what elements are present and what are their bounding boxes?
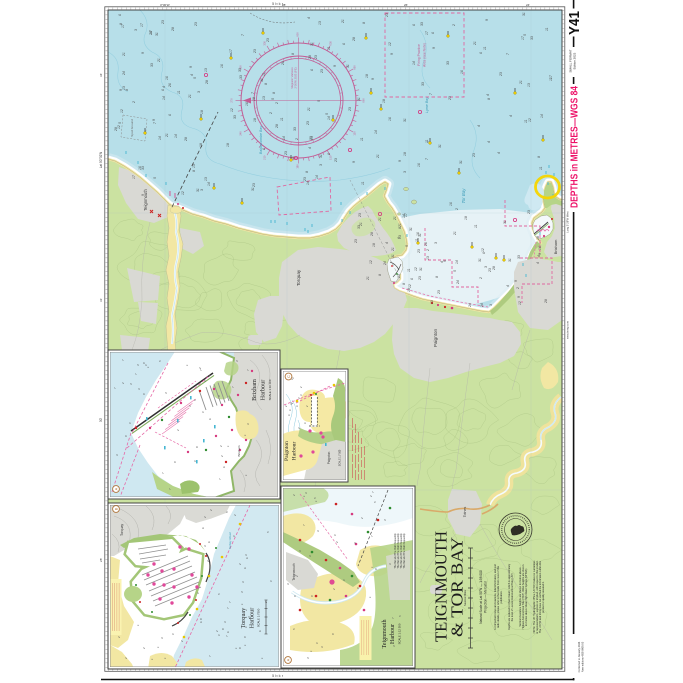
svg-text:14: 14 bbox=[540, 114, 544, 118]
svg-text:2: 2 bbox=[275, 102, 279, 105]
svg-text:14: 14 bbox=[158, 136, 162, 140]
svg-text:2°50'W 2023 (9'E): 2°50'W 2023 (9'E) bbox=[294, 67, 298, 88]
svg-text:26: 26 bbox=[424, 242, 428, 247]
svg-text:the level of Lowest Astronomic: the level of Lowest Astronomical Tide (L… bbox=[511, 572, 514, 621]
svg-text:9: 9 bbox=[371, 78, 375, 80]
svg-text:14: 14 bbox=[412, 61, 416, 65]
svg-text:26: 26 bbox=[281, 61, 285, 66]
svg-text:Spoil Ground: Spoil Ground bbox=[130, 119, 134, 137]
svg-text:18: 18 bbox=[407, 288, 411, 292]
svg-text:33: 33 bbox=[530, 36, 534, 40]
svg-text:16: 16 bbox=[417, 163, 421, 167]
svg-text:23: 23 bbox=[358, 213, 362, 218]
svg-text:17: 17 bbox=[132, 175, 136, 179]
svg-text:2: 2 bbox=[332, 588, 336, 591]
svg-text:5: 5 bbox=[118, 122, 122, 124]
svg-text:Teignmouth: Teignmouth bbox=[382, 620, 388, 649]
svg-text:Teignmouth: Teignmouth bbox=[292, 563, 296, 581]
svg-text:& TOR BAY: & TOR BAY bbox=[448, 537, 467, 637]
svg-text:28: 28 bbox=[352, 37, 356, 42]
svg-text:4: 4 bbox=[307, 17, 311, 19]
svg-text:6: 6 bbox=[410, 278, 414, 280]
svg-text:www.imray.com: www.imray.com bbox=[566, 321, 570, 339]
svg-text:13: 13 bbox=[318, 21, 322, 25]
svg-text:14: 14 bbox=[455, 260, 459, 264]
svg-text:17: 17 bbox=[404, 213, 408, 217]
svg-text:6: 6 bbox=[161, 89, 165, 91]
svg-text:23: 23 bbox=[320, 69, 324, 74]
svg-text:000: 000 bbox=[296, 32, 300, 37]
svg-text:9: 9 bbox=[189, 66, 193, 68]
svg-text:Y41: Y41 bbox=[567, 11, 583, 35]
svg-text:4: 4 bbox=[487, 141, 491, 143]
svg-text:11: 11 bbox=[177, 90, 181, 94]
svg-text:33: 33 bbox=[420, 22, 424, 26]
svg-text:28: 28 bbox=[184, 137, 188, 142]
svg-text:21: 21 bbox=[378, 217, 382, 222]
svg-text:3: 3 bbox=[403, 171, 407, 173]
svg-text:18: 18 bbox=[365, 74, 369, 78]
svg-text:16: 16 bbox=[416, 232, 420, 236]
svg-text:7: 7 bbox=[153, 122, 157, 124]
svg-text:23: 23 bbox=[397, 274, 401, 279]
svg-text:Brixham: Brixham bbox=[553, 239, 558, 254]
svg-text:16: 16 bbox=[388, 117, 392, 121]
svg-text:SCALE 1:10 000: SCALE 1:10 000 bbox=[268, 379, 272, 400]
svg-text:18: 18 bbox=[200, 110, 204, 114]
svg-text:12: 12 bbox=[481, 248, 485, 252]
svg-text:11: 11 bbox=[549, 77, 553, 81]
svg-text:18: 18 bbox=[199, 143, 203, 147]
svg-text:2: 2 bbox=[455, 208, 459, 211]
svg-text:2: 2 bbox=[132, 101, 136, 104]
svg-text:21: 21 bbox=[393, 216, 397, 221]
svg-text:2: 2 bbox=[233, 514, 237, 517]
svg-text:240: 240 bbox=[238, 131, 242, 136]
svg-text:Harbour: Harbour bbox=[260, 380, 267, 401]
svg-text:9: 9 bbox=[152, 119, 156, 121]
svg-text:3: 3 bbox=[319, 164, 323, 166]
svg-text:8: 8 bbox=[291, 53, 295, 55]
svg-text:9: 9 bbox=[538, 253, 542, 255]
svg-text:28: 28 bbox=[370, 232, 374, 237]
svg-text:23: 23 bbox=[417, 249, 421, 254]
svg-text:Paignton: Paignton bbox=[327, 451, 331, 464]
svg-text:New editions 4/58 W69.05: New editions 4/58 W69.05 bbox=[581, 641, 585, 672]
svg-text:5: 5 bbox=[523, 34, 527, 36]
svg-text:31': 31' bbox=[99, 298, 103, 302]
svg-text:SCALE 1:12 500: SCALE 1:12 500 bbox=[398, 623, 402, 644]
svg-text:2: 2 bbox=[220, 455, 224, 458]
svg-text:7: 7 bbox=[506, 53, 510, 55]
svg-text:31: 31 bbox=[503, 220, 507, 224]
svg-text:6: 6 bbox=[479, 52, 483, 54]
svg-text:12: 12 bbox=[181, 191, 185, 195]
svg-text:090: 090 bbox=[362, 98, 366, 103]
svg-text:Torbay Road: Torbay Road bbox=[228, 532, 232, 549]
svg-text:24: 24 bbox=[122, 71, 126, 76]
svg-text:11: 11 bbox=[327, 46, 331, 50]
svg-text:23: 23 bbox=[303, 177, 307, 182]
svg-text:9: 9 bbox=[517, 296, 521, 298]
svg-text:4: 4 bbox=[536, 262, 540, 264]
svg-text:9: 9 bbox=[485, 19, 489, 21]
svg-text:28: 28 bbox=[544, 299, 548, 304]
svg-text:31: 31 bbox=[391, 254, 395, 258]
svg-text:5: 5 bbox=[325, 113, 329, 115]
svg-text:12: 12 bbox=[414, 267, 418, 271]
svg-text:23: 23 bbox=[266, 38, 270, 43]
svg-text:31: 31 bbox=[403, 118, 407, 122]
svg-text:31: 31 bbox=[459, 160, 463, 164]
svg-text:11: 11 bbox=[280, 117, 284, 121]
svg-text:23: 23 bbox=[334, 158, 338, 163]
svg-text:Harbour: Harbour bbox=[249, 608, 256, 629]
svg-text:31: 31 bbox=[155, 32, 159, 36]
svg-text:8: 8 bbox=[192, 170, 196, 172]
svg-text:Firing Practice: Firing Practice bbox=[417, 44, 421, 66]
svg-text:Torquay: Torquay bbox=[296, 269, 301, 286]
svg-text:14: 14 bbox=[207, 182, 211, 186]
svg-text:2: 2 bbox=[295, 138, 299, 141]
svg-text:9: 9 bbox=[514, 280, 518, 282]
svg-text:4: 4 bbox=[162, 86, 166, 88]
svg-text:2: 2 bbox=[209, 509, 213, 512]
svg-text:18: 18 bbox=[382, 99, 386, 103]
svg-text:21: 21 bbox=[473, 41, 477, 46]
svg-text:24: 24 bbox=[480, 303, 484, 308]
svg-text:9: 9 bbox=[333, 65, 337, 67]
svg-text:31: 31 bbox=[260, 78, 264, 82]
svg-text:2: 2 bbox=[269, 112, 273, 115]
svg-text:21: 21 bbox=[307, 107, 311, 112]
svg-text:31: 31 bbox=[478, 258, 482, 262]
svg-text:8: 8 bbox=[272, 92, 276, 94]
svg-text:33: 33 bbox=[293, 127, 297, 131]
svg-text:6: 6 bbox=[342, 43, 346, 45]
svg-text:Harbour: Harbour bbox=[390, 624, 396, 644]
svg-text:23: 23 bbox=[284, 151, 288, 156]
svg-text:12: 12 bbox=[528, 118, 532, 122]
svg-text:16: 16 bbox=[449, 202, 453, 206]
svg-text:24: 24 bbox=[149, 31, 153, 36]
svg-text:3°30'W: 3°30'W bbox=[160, 3, 170, 7]
svg-text:Projection — Mercator: Projection — Mercator bbox=[484, 580, 488, 613]
svg-text:11: 11 bbox=[474, 224, 478, 228]
svg-text:8: 8 bbox=[537, 156, 541, 158]
svg-text:23: 23 bbox=[354, 239, 358, 244]
svg-text:6: 6 bbox=[412, 24, 416, 26]
svg-text:2: 2 bbox=[206, 560, 210, 563]
svg-text:24: 24 bbox=[383, 261, 387, 266]
svg-text:Corrected to January 2024: Corrected to January 2024 bbox=[577, 641, 581, 672]
svg-text:Lat 50°32'N: Lat 50°32'N bbox=[99, 151, 103, 168]
svg-text:16: 16 bbox=[538, 246, 542, 250]
svg-text:5: 5 bbox=[271, 98, 275, 100]
svg-text:16: 16 bbox=[460, 70, 464, 74]
svg-text:28: 28 bbox=[114, 127, 118, 132]
svg-text:2: 2 bbox=[176, 429, 180, 432]
svg-text:11: 11 bbox=[262, 72, 266, 76]
svg-text:5 b k r: 5 b k r bbox=[272, 673, 284, 678]
svg-text:33: 33 bbox=[239, 75, 243, 79]
svg-text:2: 2 bbox=[219, 445, 223, 448]
svg-text:11: 11 bbox=[361, 181, 365, 185]
svg-text:Harbour: Harbour bbox=[292, 442, 298, 461]
svg-text:30': 30' bbox=[99, 418, 103, 423]
svg-text:28: 28 bbox=[275, 124, 279, 129]
svg-text:21: 21 bbox=[391, 247, 395, 252]
svg-text:8: 8 bbox=[119, 23, 123, 25]
svg-text:Magnetic Variation: Magnetic Variation bbox=[290, 67, 294, 89]
svg-text:14: 14 bbox=[327, 116, 331, 120]
svg-text:Babbacombe Bay: Babbacombe Bay bbox=[259, 126, 263, 155]
svg-text:SCALE 1:7500: SCALE 1:7500 bbox=[257, 608, 261, 627]
svg-text:11: 11 bbox=[483, 46, 487, 50]
svg-text:3: 3 bbox=[489, 304, 493, 306]
svg-text:24: 24 bbox=[468, 303, 472, 308]
svg-text:31: 31 bbox=[419, 267, 423, 271]
svg-text:3: 3 bbox=[197, 91, 201, 93]
svg-text:14: 14 bbox=[282, 136, 286, 140]
svg-text:12: 12 bbox=[120, 109, 124, 113]
svg-text:A: A bbox=[285, 658, 290, 661]
svg-text:31: 31 bbox=[522, 12, 526, 16]
svg-text:23: 23 bbox=[448, 96, 452, 101]
svg-text:18: 18 bbox=[403, 152, 407, 156]
svg-text:23: 23 bbox=[499, 72, 503, 77]
svg-text:3: 3 bbox=[200, 189, 204, 191]
svg-text:Paignton: Paignton bbox=[284, 441, 290, 461]
svg-text:23: 23 bbox=[527, 210, 531, 215]
svg-text:21: 21 bbox=[366, 276, 370, 281]
svg-text:13: 13 bbox=[204, 68, 208, 72]
svg-text:21: 21 bbox=[359, 222, 363, 227]
svg-text:13: 13 bbox=[204, 177, 208, 181]
svg-text:7: 7 bbox=[429, 93, 433, 95]
svg-text:13: 13 bbox=[122, 86, 126, 90]
svg-text:2: 2 bbox=[292, 494, 296, 497]
svg-text:8: 8 bbox=[435, 276, 439, 278]
svg-text:23: 23 bbox=[194, 22, 198, 27]
svg-text:18: 18 bbox=[226, 143, 230, 147]
svg-text:3: 3 bbox=[434, 242, 438, 244]
svg-text:4: 4 bbox=[385, 242, 389, 244]
svg-text:2: 2 bbox=[479, 277, 483, 280]
svg-text:4: 4 bbox=[486, 94, 490, 96]
svg-text:in metres above Mean High Wate: in metres above Mean High Water Springs … bbox=[525, 568, 528, 626]
svg-text:11: 11 bbox=[539, 166, 543, 170]
svg-text:23: 23 bbox=[161, 20, 165, 25]
svg-text:8: 8 bbox=[264, 83, 268, 85]
svg-text:270: 270 bbox=[230, 98, 234, 103]
svg-text:8: 8 bbox=[305, 171, 309, 173]
svg-text:23: 23 bbox=[314, 55, 318, 60]
svg-text:31: 31 bbox=[319, 154, 323, 158]
svg-text:12: 12 bbox=[518, 301, 522, 305]
svg-text:11: 11 bbox=[360, 137, 364, 141]
svg-text:21: 21 bbox=[341, 19, 345, 24]
svg-text:6: 6 bbox=[431, 32, 435, 34]
svg-text:9: 9 bbox=[398, 160, 402, 162]
svg-text:publication.: publication. bbox=[500, 590, 503, 603]
svg-text:9: 9 bbox=[352, 161, 356, 163]
svg-text:13: 13 bbox=[192, 164, 196, 168]
svg-text:product or quality assured it.: product or quality assured it. bbox=[542, 581, 545, 613]
svg-text:33: 33 bbox=[150, 63, 154, 67]
svg-text:2: 2 bbox=[198, 367, 202, 370]
svg-text:8: 8 bbox=[378, 274, 382, 276]
svg-text:11: 11 bbox=[545, 27, 549, 31]
svg-text:8: 8 bbox=[362, 22, 366, 24]
svg-text:7: 7 bbox=[241, 34, 245, 36]
svg-text:Edition 2023: Edition 2023 bbox=[573, 52, 577, 69]
svg-text:12: 12 bbox=[230, 108, 234, 112]
svg-text:2: 2 bbox=[215, 630, 219, 633]
svg-text:3: 3 bbox=[134, 29, 138, 31]
svg-text:21: 21 bbox=[122, 52, 126, 57]
svg-text:9: 9 bbox=[141, 52, 145, 54]
svg-text:14: 14 bbox=[162, 96, 166, 100]
svg-text:6: 6 bbox=[397, 237, 401, 239]
svg-text:21: 21 bbox=[453, 231, 457, 236]
svg-text:C: C bbox=[286, 375, 291, 378]
svg-text:4: 4 bbox=[477, 125, 481, 127]
svg-text:13: 13 bbox=[262, 96, 266, 100]
svg-text:Long 3°28'W West: Long 3°28'W West bbox=[566, 211, 570, 233]
svg-text:21: 21 bbox=[188, 94, 192, 99]
svg-text:2: 2 bbox=[203, 516, 207, 519]
svg-text:33: 33 bbox=[141, 166, 145, 170]
svg-text:2: 2 bbox=[238, 563, 242, 566]
svg-text:2: 2 bbox=[452, 24, 456, 27]
svg-text:030: 030 bbox=[329, 41, 333, 46]
svg-text:5: 5 bbox=[153, 177, 157, 179]
svg-text:11: 11 bbox=[407, 268, 411, 272]
svg-text:8: 8 bbox=[487, 98, 491, 100]
svg-text:Tor Bay: Tor Bay bbox=[461, 188, 466, 204]
svg-text:6: 6 bbox=[310, 69, 314, 71]
svg-text:A: A bbox=[113, 487, 118, 490]
svg-text:2: 2 bbox=[335, 541, 339, 544]
svg-text:2: 2 bbox=[369, 495, 373, 498]
svg-text:21: 21 bbox=[519, 80, 523, 85]
svg-text:17: 17 bbox=[425, 31, 429, 35]
svg-text:4: 4 bbox=[497, 152, 501, 154]
svg-text:28: 28 bbox=[171, 27, 175, 32]
svg-text:23: 23 bbox=[472, 153, 476, 158]
svg-text:6: 6 bbox=[118, 14, 122, 16]
svg-text:23: 23 bbox=[488, 268, 492, 273]
svg-text:4: 4 bbox=[537, 255, 541, 257]
svg-text:31: 31 bbox=[357, 97, 361, 101]
svg-text:2: 2 bbox=[516, 287, 520, 290]
svg-text:5: 5 bbox=[453, 270, 457, 272]
svg-text:Nautical Miles: Nautical Miles bbox=[463, 589, 467, 606]
svg-text:23: 23 bbox=[253, 49, 257, 54]
svg-text:13: 13 bbox=[430, 300, 434, 304]
svg-text:8: 8 bbox=[398, 227, 402, 229]
svg-text:12: 12 bbox=[408, 284, 412, 288]
svg-text:9: 9 bbox=[432, 47, 436, 49]
svg-text:Totnes: Totnes bbox=[463, 507, 467, 518]
svg-text:26': 26' bbox=[404, 3, 408, 7]
svg-text:3: 3 bbox=[484, 266, 488, 268]
svg-text:14: 14 bbox=[374, 130, 378, 134]
svg-text:B: B bbox=[113, 507, 118, 510]
svg-text:24': 24' bbox=[526, 3, 530, 7]
svg-text:2: 2 bbox=[360, 517, 364, 520]
svg-text:31: 31 bbox=[346, 64, 350, 68]
svg-text:12: 12 bbox=[388, 42, 392, 46]
svg-text:33: 33 bbox=[233, 115, 237, 119]
svg-text:Torquay: Torquay bbox=[120, 524, 124, 536]
svg-text:4: 4 bbox=[509, 115, 513, 117]
svg-text:31: 31 bbox=[508, 258, 512, 262]
svg-text:7: 7 bbox=[251, 92, 255, 94]
svg-text:9: 9 bbox=[390, 53, 394, 55]
svg-text:17: 17 bbox=[521, 36, 525, 40]
svg-text:16: 16 bbox=[245, 102, 249, 106]
svg-text:7: 7 bbox=[425, 158, 429, 160]
svg-text:16: 16 bbox=[165, 76, 169, 80]
svg-text:13: 13 bbox=[527, 83, 531, 87]
svg-text:11: 11 bbox=[425, 139, 429, 143]
svg-text:23: 23 bbox=[309, 136, 313, 141]
svg-text:33: 33 bbox=[446, 61, 450, 65]
svg-text:21: 21 bbox=[157, 58, 161, 63]
svg-text:Brixham: Brixham bbox=[251, 379, 258, 401]
svg-text:4: 4 bbox=[190, 74, 194, 76]
svg-text:28: 28 bbox=[205, 80, 209, 85]
svg-text:120: 120 bbox=[353, 131, 357, 136]
svg-text:6: 6 bbox=[168, 114, 172, 116]
svg-text:060: 060 bbox=[353, 65, 357, 70]
svg-text:16: 16 bbox=[220, 64, 224, 68]
svg-text:14: 14 bbox=[315, 175, 319, 179]
svg-text:23: 23 bbox=[385, 13, 389, 18]
svg-text:31: 31 bbox=[409, 227, 413, 231]
svg-text:5 b k r: 5 b k r bbox=[272, 1, 284, 6]
svg-text:12: 12 bbox=[369, 260, 373, 264]
svg-text:33: 33 bbox=[421, 82, 425, 86]
svg-text:Lyme Bay: Lyme Bay bbox=[425, 97, 429, 113]
svg-text:23: 23 bbox=[306, 121, 310, 126]
svg-text:4: 4 bbox=[308, 147, 312, 149]
svg-text:17: 17 bbox=[140, 23, 144, 27]
svg-text:210: 210 bbox=[263, 155, 267, 160]
svg-text:9: 9 bbox=[443, 260, 447, 262]
svg-text:31: 31 bbox=[310, 42, 314, 46]
svg-text:21: 21 bbox=[376, 154, 380, 159]
svg-text:2: 2 bbox=[426, 249, 430, 252]
svg-text:13: 13 bbox=[426, 256, 430, 260]
svg-text:18: 18 bbox=[464, 216, 468, 220]
svg-text:2: 2 bbox=[124, 657, 128, 660]
svg-text:33: 33 bbox=[238, 68, 242, 72]
svg-text:17: 17 bbox=[229, 49, 233, 53]
svg-text:Paignton: Paignton bbox=[433, 328, 438, 347]
svg-text:2: 2 bbox=[117, 636, 121, 639]
svg-text:2: 2 bbox=[121, 382, 125, 385]
svg-text:Teignmouth: Teignmouth bbox=[143, 189, 148, 211]
svg-text:28: 28 bbox=[492, 266, 496, 271]
svg-text:2: 2 bbox=[295, 575, 299, 578]
svg-text:21: 21 bbox=[165, 133, 169, 138]
svg-text:18: 18 bbox=[253, 118, 257, 122]
svg-text:DEPTHS in METRES—WGS 84: DEPTHS in METRES—WGS 84 bbox=[570, 86, 581, 208]
svg-text:6: 6 bbox=[327, 153, 331, 155]
